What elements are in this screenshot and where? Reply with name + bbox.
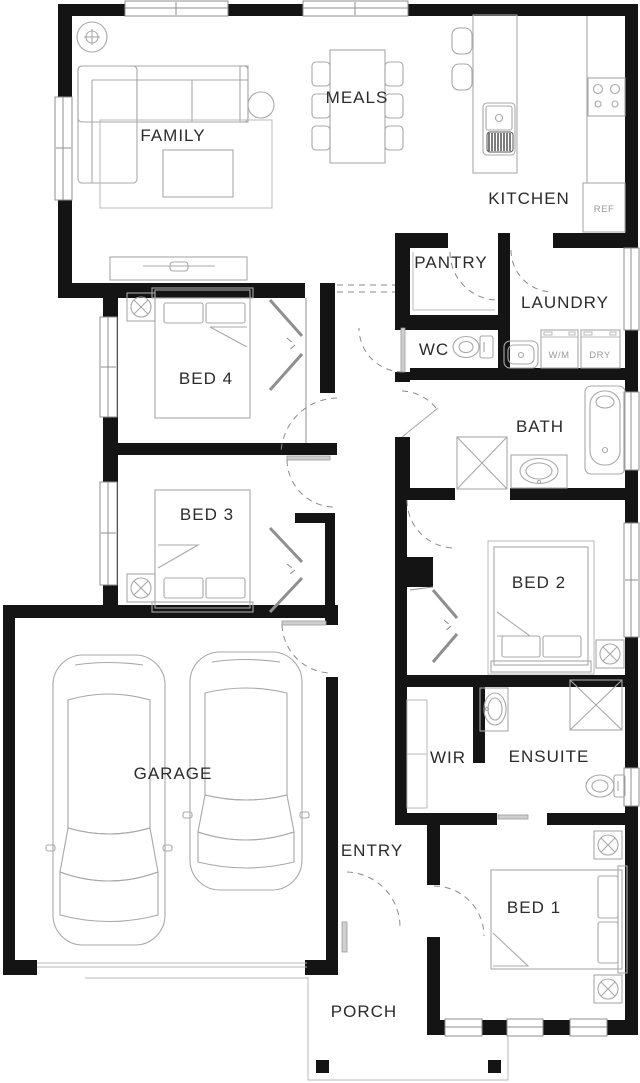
bed4-robe-icon (270, 298, 306, 443)
bed2-door-arc (407, 500, 455, 548)
bed2-bed-icon (491, 547, 591, 672)
bed1-label: BED 1 (507, 898, 561, 917)
sink-icon (483, 103, 515, 155)
garage-access-door-arc (282, 625, 330, 673)
bed3-robe-icon (270, 528, 302, 612)
bed3-label: BED 3 (180, 505, 234, 524)
room-kitchen: REF KITCHEN (452, 15, 625, 232)
room-meals: MEALS (312, 50, 403, 163)
room-bath: BATH (457, 386, 625, 489)
washing-machine-label: W/M (548, 350, 569, 361)
bed1-bed-icon (491, 866, 627, 973)
bed2-robe-icon (410, 587, 457, 662)
porch-post-2 (488, 1060, 501, 1073)
ensuite-toilet-icon (586, 775, 625, 797)
fridge-label: REF (594, 204, 615, 215)
wir-label: WIR (430, 748, 466, 767)
bed1-fan-icon-1 (594, 831, 622, 859)
floor-plan-page: FAMILY MEALS (0, 0, 640, 1083)
wc-label: WC (419, 340, 449, 359)
room-laundry: W/M DRY LAUNDRY (504, 293, 620, 368)
bath-door-leaf (402, 408, 438, 437)
cooktop-icon (588, 78, 625, 116)
window-bed2-right (624, 523, 639, 637)
window-bed1-bottom-2 (507, 1019, 543, 1036)
ensuite-shower-icon (570, 680, 622, 730)
room-bed3: BED 3 (127, 490, 302, 612)
meals-label: MEALS (326, 88, 389, 107)
family-label: FAMILY (140, 126, 205, 145)
bed2-surround (488, 541, 594, 674)
vanity-basin-icon (511, 455, 567, 488)
window-laundry-right (624, 248, 639, 330)
room-family: FAMILY (77, 22, 274, 280)
window-bed1-bottom-1 (445, 1019, 482, 1036)
bed3-door-leaf (287, 456, 330, 460)
porch-post-1 (316, 1060, 329, 1073)
toilet-icon (453, 336, 493, 358)
front-door-arc (347, 872, 400, 927)
window-family-left (55, 97, 72, 200)
tv-unit-icon (110, 257, 247, 280)
room-pantry: PANTRY (413, 252, 495, 310)
coffee-table-icon (163, 150, 233, 197)
pantry-label: PANTRY (414, 253, 487, 272)
ensuite-slider-leaf (498, 815, 528, 819)
dryer-label: DRY (589, 350, 611, 361)
window-bed4-left (100, 317, 117, 417)
wc-door-leaf (401, 328, 405, 372)
bed1-fan-icon-2 (594, 975, 622, 1003)
room-ensuite: ENSUITE (480, 680, 625, 797)
garage-door-leaf (282, 621, 326, 625)
entry-label: ENTRY (341, 841, 403, 860)
laundry-label: LAUNDRY (521, 293, 609, 312)
kitchen-label: KITCHEN (488, 189, 570, 208)
side-table-icon (248, 92, 274, 118)
room-bed1: BED 1 (491, 831, 627, 1003)
room-wir: WIR (407, 700, 466, 808)
room-garage: GARAGE (46, 652, 309, 945)
bathtub-icon (585, 386, 625, 474)
window-bath-right (624, 392, 639, 470)
bed4-label: BED 4 (179, 369, 233, 388)
window-bed3-left (100, 482, 117, 585)
front-door-leaf (342, 922, 347, 952)
porch-label: PORCH (331, 1002, 397, 1021)
room-wc: WC (419, 336, 493, 359)
wc-door-arc (359, 328, 403, 372)
fridge-icon: REF (583, 183, 625, 232)
room-bed4: BED 4 (127, 288, 306, 443)
bed2-label: BED 2 (512, 573, 566, 592)
bath-label: BATH (516, 417, 564, 436)
room-entry: ENTRY (341, 841, 403, 860)
bed4-bed-icon (152, 288, 253, 418)
washing-machine-icon: W/M (541, 330, 578, 368)
windows (55, 1, 639, 1036)
window-ensuite-right (624, 768, 639, 806)
bed1-door-arc (434, 886, 484, 936)
window-family-top (125, 1, 228, 16)
shower-icon (457, 437, 507, 489)
bed3-fan-icon (127, 574, 155, 602)
garage-label: GARAGE (134, 764, 213, 783)
ceiling-light-icon (77, 22, 107, 52)
laundry-door-arc (511, 250, 553, 292)
bath-door-arc (401, 391, 436, 408)
bed2-fan-icon (596, 640, 624, 668)
window-bed1-bottom-3 (570, 1019, 607, 1036)
ensuite-label: ENSUITE (509, 747, 590, 766)
bed3-door-arc (287, 460, 333, 507)
room-bed2: BED 2 (410, 541, 624, 674)
car-1-icon (46, 655, 172, 945)
window-meals-top (303, 1, 408, 16)
dryer-icon: DRY (581, 330, 620, 368)
floor-plan-drawing: FAMILY MEALS (0, 0, 640, 1083)
